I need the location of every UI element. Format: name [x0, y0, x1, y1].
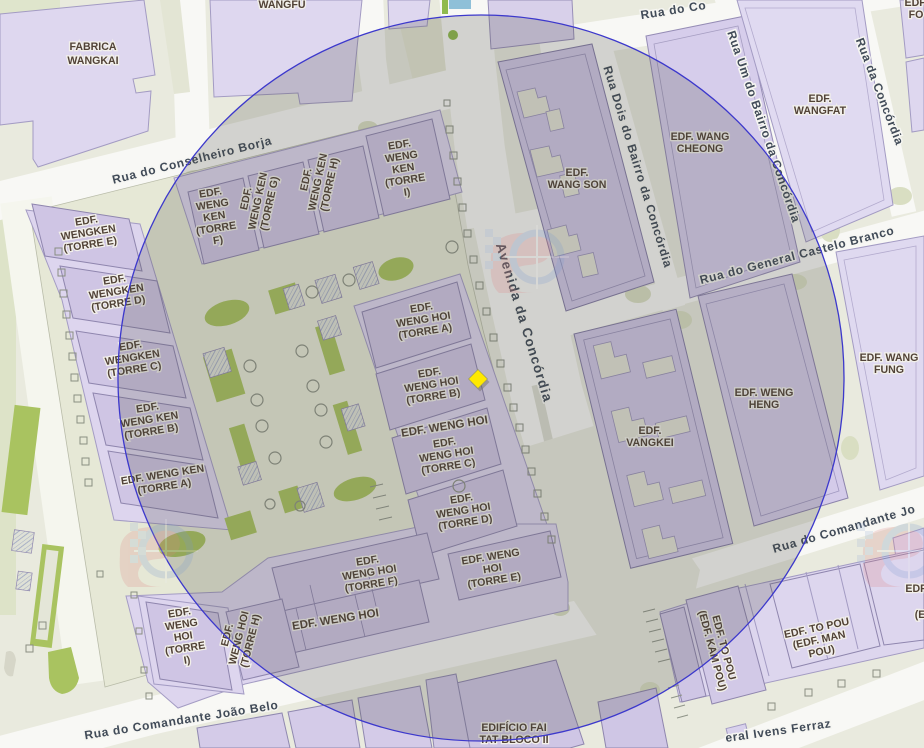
svg-text:WANGFU: WANGFU — [258, 0, 305, 11]
svg-text:(E: (E — [915, 609, 924, 621]
svg-text:EDF: EDF — [905, 583, 924, 595]
